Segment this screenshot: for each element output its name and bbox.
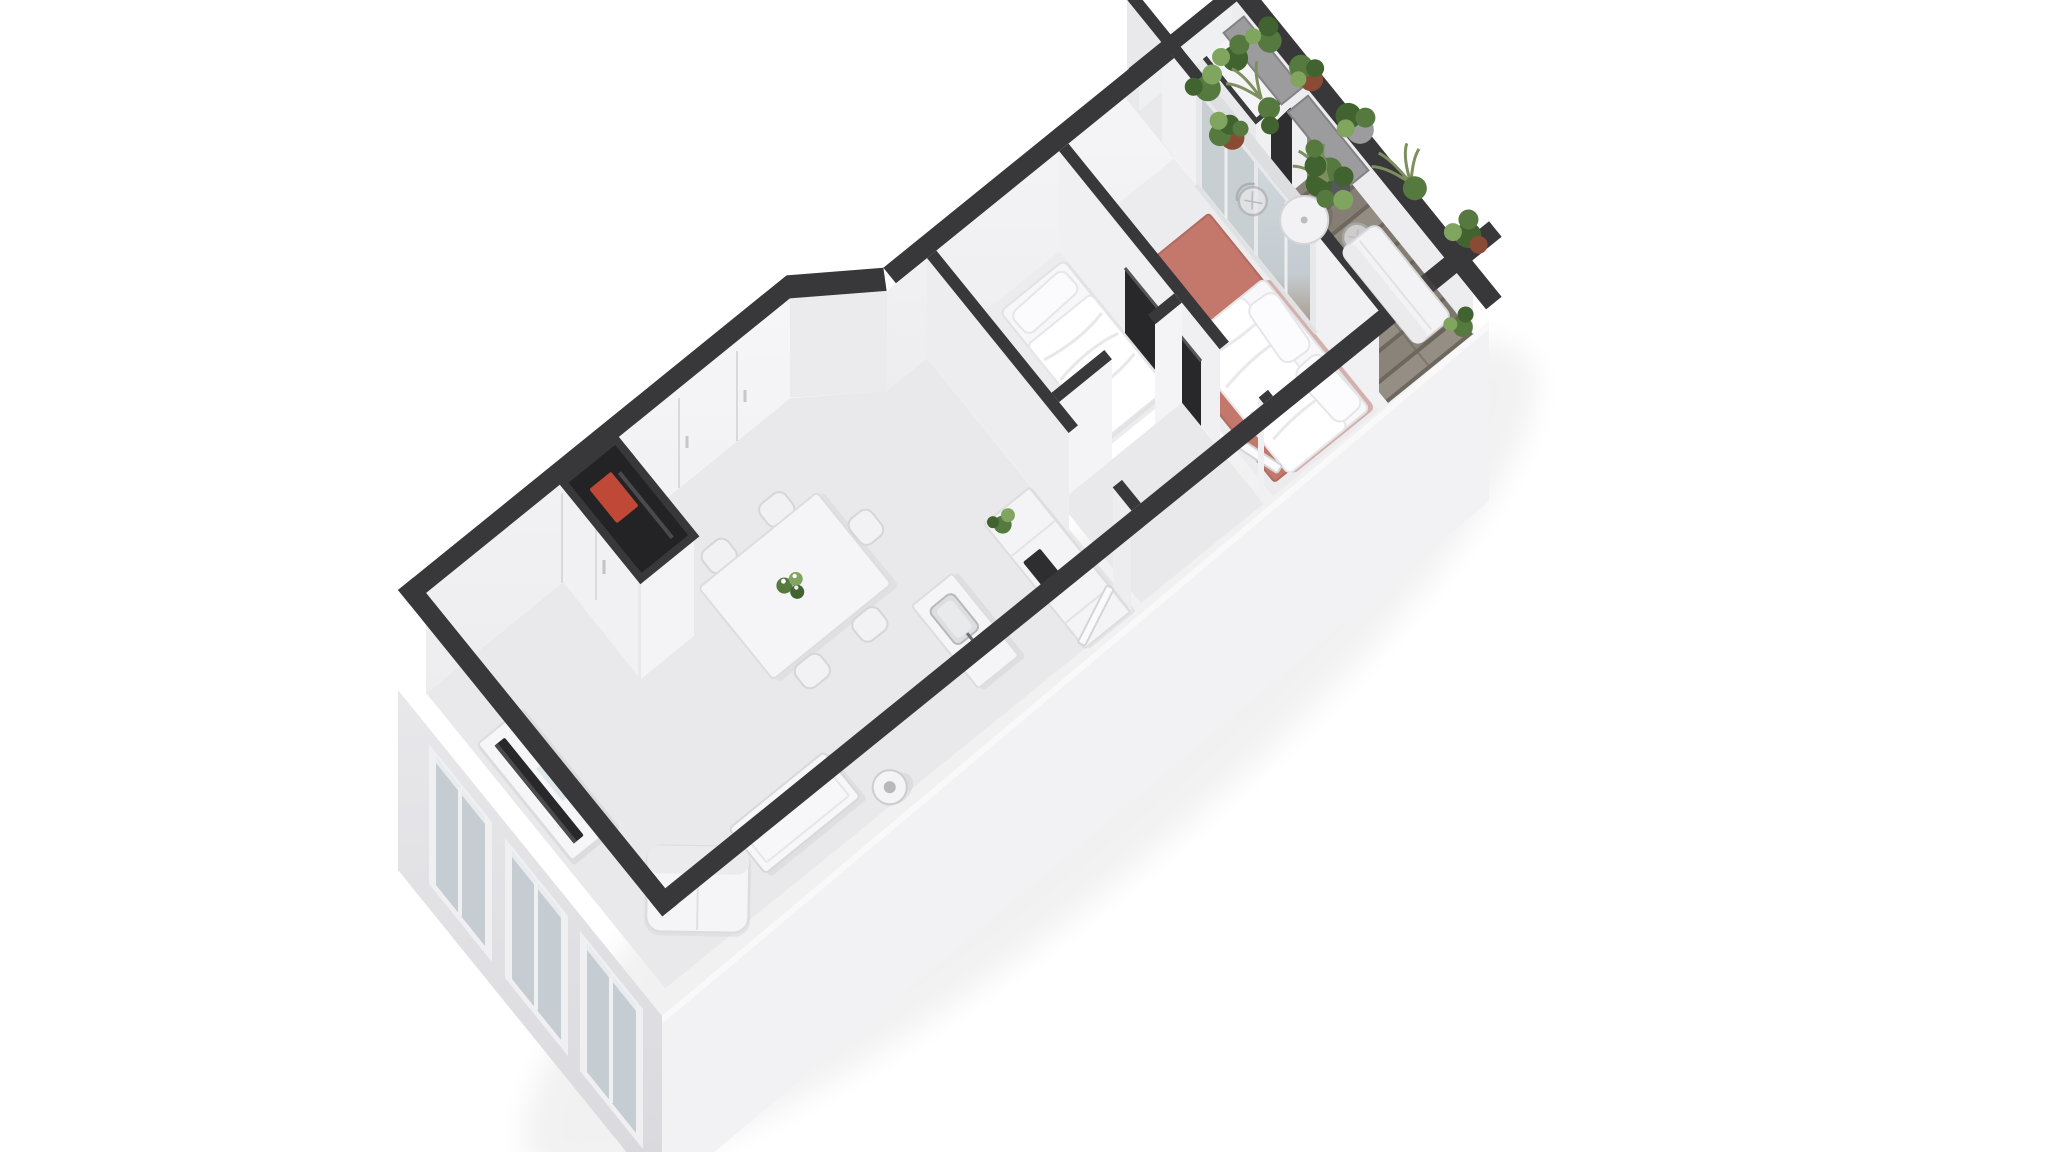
- floorplan-3d: [0, 0, 2048, 1152]
- wall-face-chamfer: [790, 291, 887, 398]
